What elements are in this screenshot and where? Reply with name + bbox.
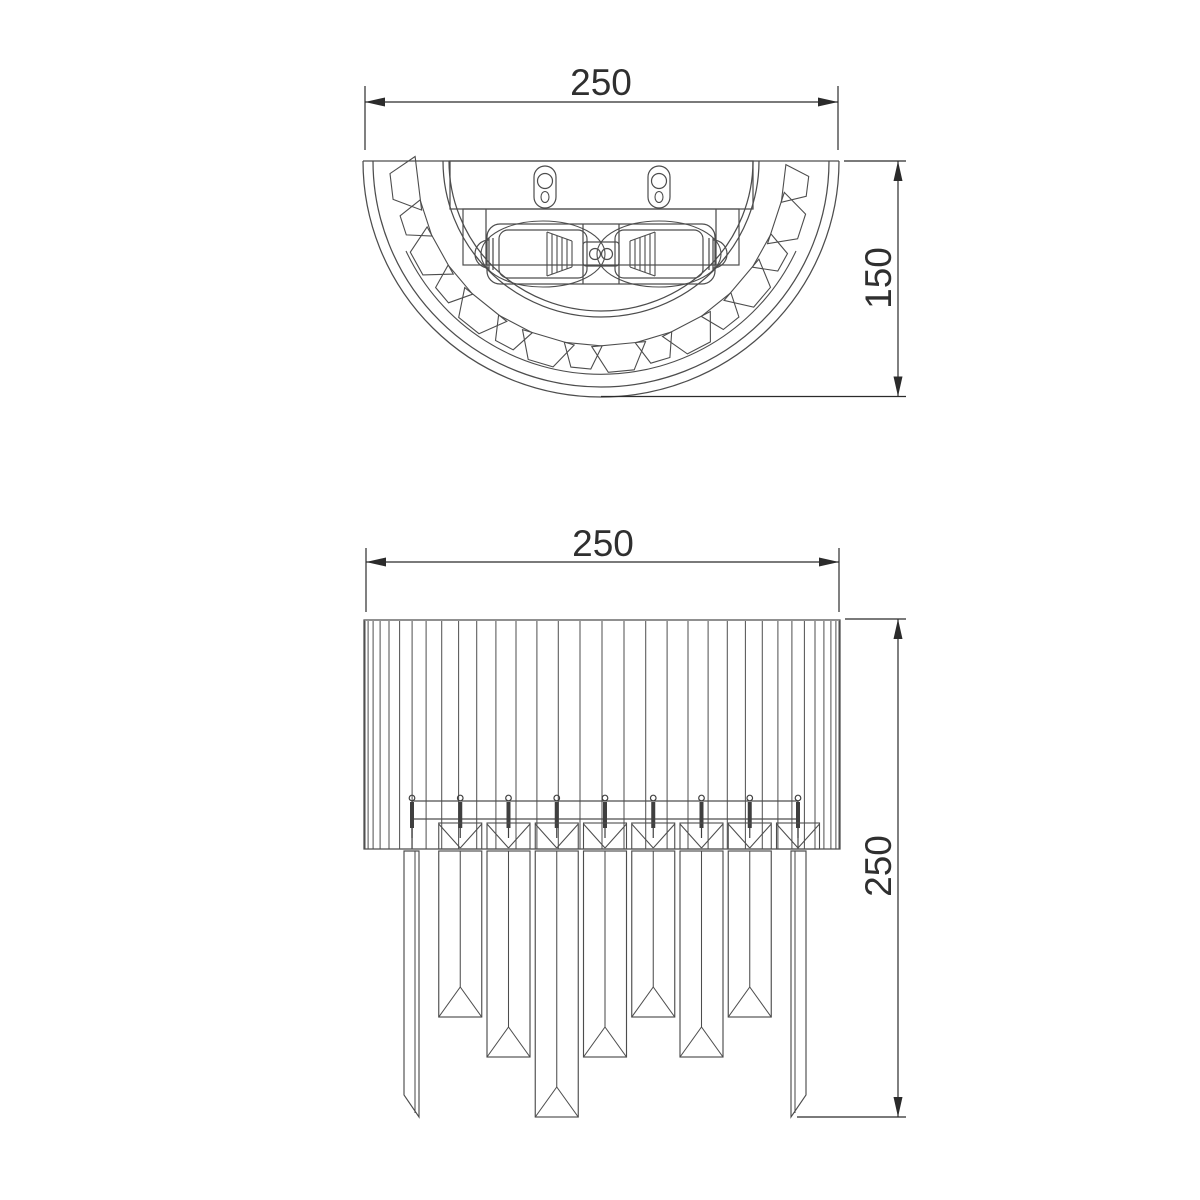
ring-crystal [400,200,432,236]
crystal-prism [439,851,482,1017]
bulb-left [499,230,587,278]
lamp-assembly [475,221,727,287]
keyhole-slot [534,166,556,208]
mounting-plate [450,161,753,209]
dimension-arrow [894,161,903,181]
dimension-label-top-depth: 150 [858,247,899,309]
crystal-prism-edge-left [404,851,419,1117]
dimension-arrow [365,98,385,107]
ring-crystal [753,234,788,271]
socket-thread-right [630,232,655,276]
dimension-arrow [894,619,903,639]
ring-crystal [701,293,739,330]
bulb-right [615,230,703,278]
crystal-prisms [404,851,806,1117]
crystal-prism [632,851,675,1017]
dimension-arrow [894,377,903,397]
crystal-prism [487,851,530,1057]
center-coupler [583,242,619,266]
crystal-prism [535,851,578,1117]
crystal-prism [728,851,771,1017]
ring-crystal [635,332,671,363]
front-view [364,620,840,1117]
dimension-label-front-width: 250 [572,523,634,564]
crystal-prism [680,851,723,1057]
dimension-label-top-width: 250 [570,62,632,103]
dimension-arrow [366,558,386,567]
dimensions: 250 150 250 250 [365,62,906,1117]
dimension-label-front-height: 250 [858,835,899,897]
dimension-arrow [819,558,839,567]
socket-thread-left [547,232,572,276]
ring-crystal [496,315,533,350]
dimension-arrow [894,1097,903,1117]
technical-drawing: 250 150 250 250 [0,0,1200,1200]
crystal-prism [584,851,627,1057]
ring-crystal [781,165,808,203]
keyhole-slot [648,166,670,208]
ring-crystal [436,265,473,303]
ring-crystal [724,259,770,307]
dimension-arrow [818,98,838,107]
crystal-prism-edge-right [791,851,806,1117]
drawing-sheet: 250 150 250 250 [0,0,1200,1200]
top-view [363,157,839,398]
shade-flutes [365,621,839,849]
lamp-bracket [463,209,739,265]
